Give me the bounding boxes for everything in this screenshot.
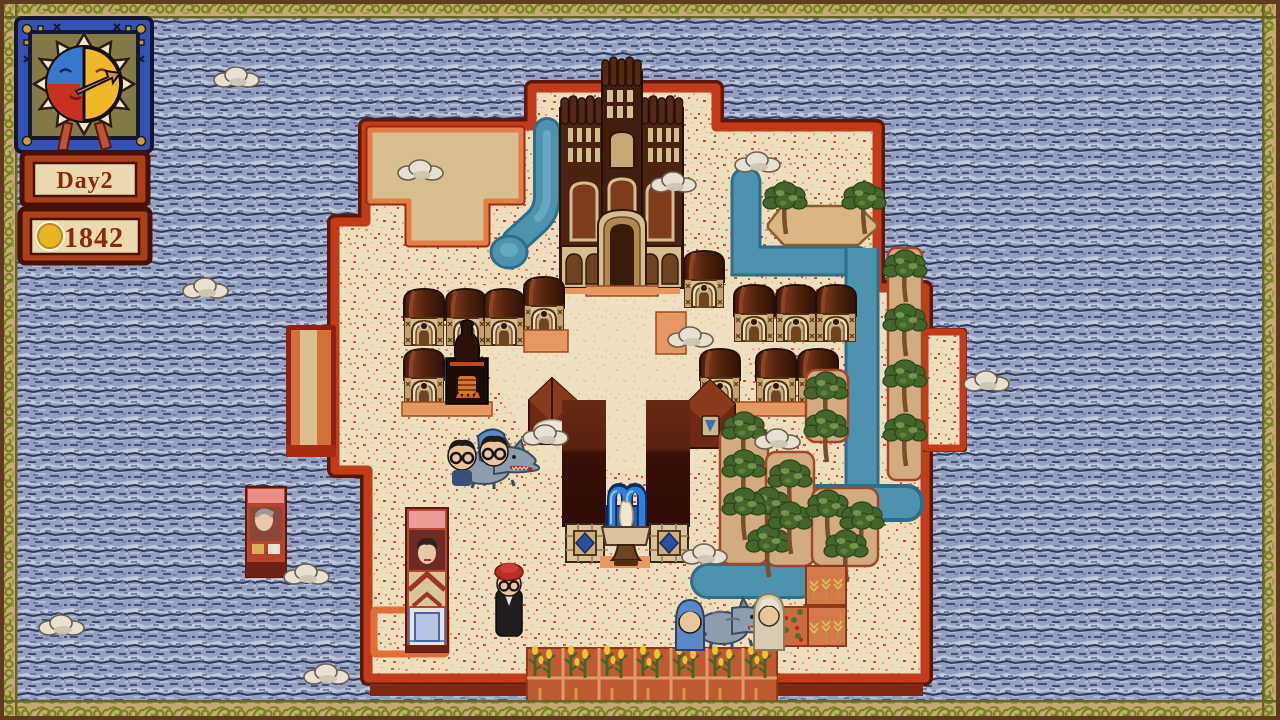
svg-text:1842: 1842 <box>64 223 124 254</box>
svg-text:Day2: Day2 <box>56 168 113 194</box>
